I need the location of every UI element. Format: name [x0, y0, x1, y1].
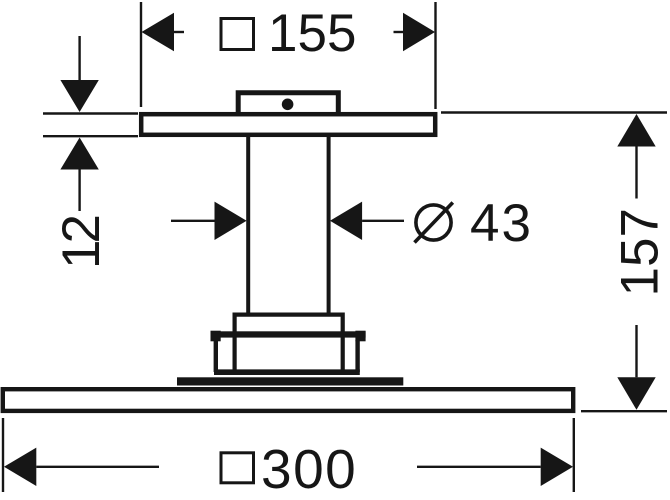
svg-text:12: 12 [52, 217, 111, 269]
svg-text:43: 43 [470, 194, 533, 253]
svg-text:300: 300 [261, 438, 357, 500]
svg-text:155: 155 [268, 4, 356, 63]
svg-text:157: 157 [611, 208, 670, 296]
